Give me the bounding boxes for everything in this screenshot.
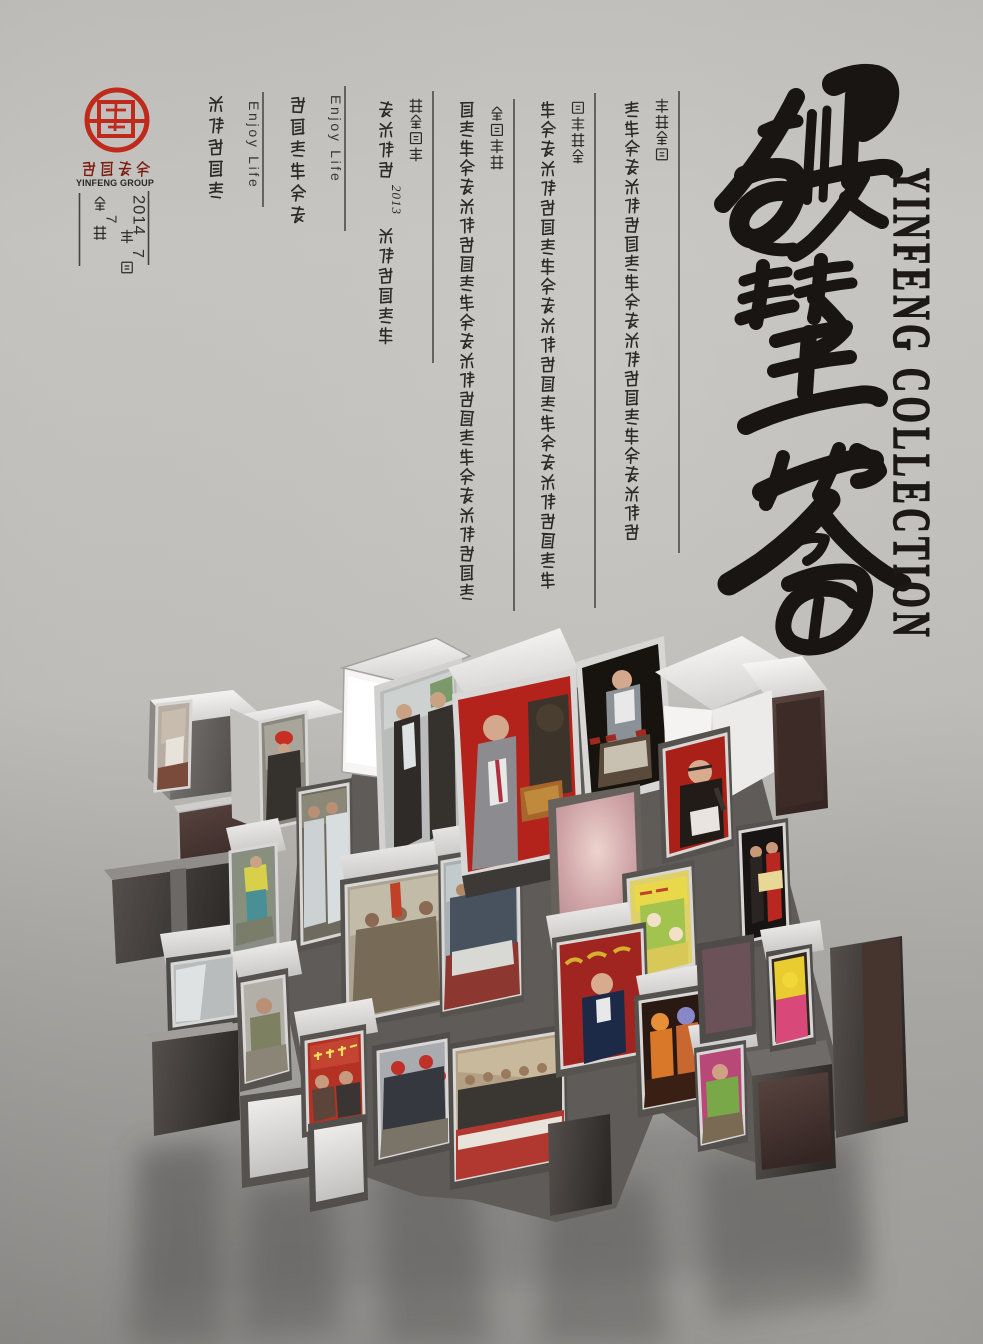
svg-text:7: 7 <box>103 215 120 223</box>
svg-text:YINFENG COLLECTION: YINFENG COLLECTION <box>882 168 941 641</box>
svg-text:YINFENG GROUP: YINFENG GROUP <box>76 178 154 188</box>
svg-text:7: 7 <box>129 249 146 258</box>
svg-text:Enjoy Life: Enjoy Life <box>328 95 344 183</box>
svg-text:2013: 2013 <box>389 185 404 215</box>
svg-text:2014: 2014 <box>130 195 148 236</box>
svg-text:Enjoy Life: Enjoy Life <box>246 101 262 189</box>
